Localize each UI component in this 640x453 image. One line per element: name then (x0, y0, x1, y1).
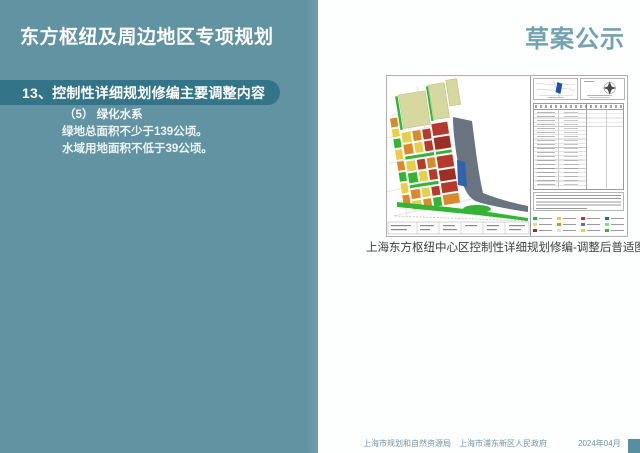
page: 东方枢纽及周边地区专项规划 13、控制性详细规划修编主要调整内容 （5） 绿化水… (0, 0, 640, 453)
legend-chip (557, 223, 576, 226)
north-arrow-inset (580, 78, 625, 100)
legend-block (533, 214, 624, 234)
section-header-bar: 13、控制性详细规划修编主要调整内容 (0, 80, 280, 105)
legend-chip (557, 229, 576, 232)
north-arrow-icon (581, 79, 624, 99)
legend-chip (605, 229, 624, 232)
footer-org-1: 上海市规划和自然资源局 (363, 438, 451, 449)
legend-chip (581, 217, 600, 220)
footer-org-2: 上海市浦东新区人民政府 (459, 438, 547, 449)
footer: 上海市规划和自然资源局 上海市浦东新区人民政府 2024年04月 (363, 438, 621, 449)
legend-chip (581, 229, 600, 232)
location-inset-map (533, 78, 578, 100)
map-caption: 上海东方枢纽中心区控制性详细规划修编-调整后普适图则 (366, 239, 640, 255)
legend-chip (533, 223, 552, 226)
page-title: 东方枢纽及周边地区专项规划 (20, 22, 274, 49)
legend-chip (581, 223, 600, 226)
notes-block (533, 192, 624, 211)
planning-map-figure (386, 75, 628, 237)
item-heading: （5） 绿化水系 (64, 106, 143, 122)
location-inset-svg (534, 79, 577, 99)
legend-chip (605, 217, 624, 220)
section-header-label: 13、控制性详细规划修编主要调整内容 (22, 83, 265, 103)
index-table (533, 103, 624, 190)
body-line: 水域用地面积不低于39公顷。 (62, 140, 213, 156)
draft-notice-label: 草案公示 (525, 19, 625, 54)
inset-row (533, 78, 625, 100)
drawing-title-strip (388, 222, 529, 234)
plan-drawing (387, 76, 530, 236)
left-panel: 东方枢纽及周边地区专项规划 13、控制性详细规划修编主要调整内容 （5） 绿化水… (0, 0, 318, 453)
map-legend-panel (530, 76, 627, 236)
legend-chip (533, 217, 552, 220)
corner-accent-square (628, 439, 640, 453)
legend-chip (533, 229, 552, 232)
legend-chip (557, 217, 576, 220)
legend-chip (605, 223, 624, 226)
plan-drawing-svg (387, 76, 530, 236)
body-line: 绿地总面积不少于139公顷。 (62, 123, 208, 139)
footer-date: 2024年04月 (578, 438, 621, 449)
